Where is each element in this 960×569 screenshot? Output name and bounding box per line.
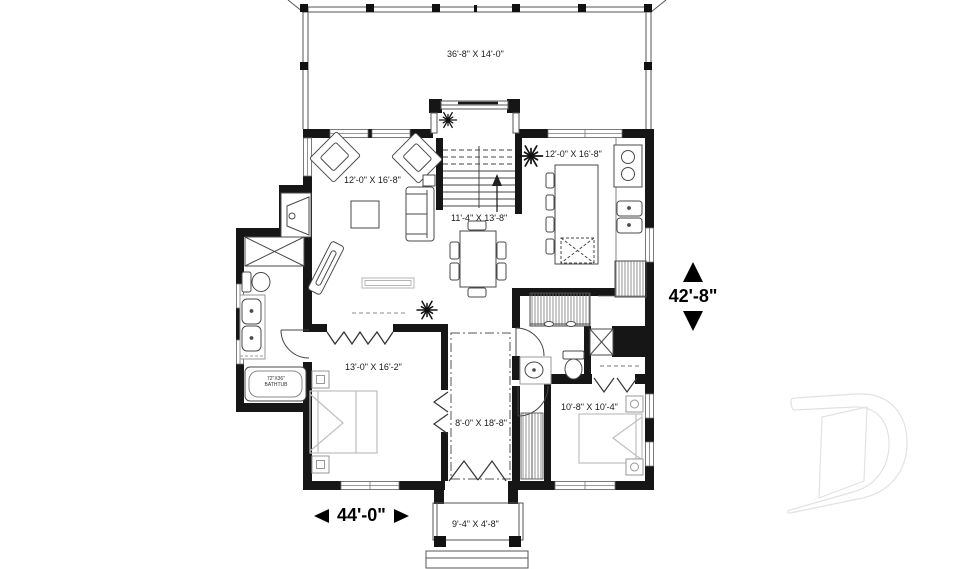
refrigerator <box>615 261 646 297</box>
porch-french-doors <box>449 461 506 481</box>
arrow-right-icon <box>394 509 409 523</box>
master-double-doors <box>434 392 448 434</box>
nightstand <box>312 456 329 473</box>
island-sink-dashed <box>561 238 594 263</box>
overall-height-dimension: 42'-8" <box>660 262 726 331</box>
arrow-up-icon <box>683 262 703 282</box>
toilet <box>563 351 584 379</box>
sofa <box>406 187 434 241</box>
master-bedroom-furniture <box>310 313 406 473</box>
stool <box>546 239 554 254</box>
bedroom2-door <box>518 386 548 416</box>
nightstand <box>626 396 643 412</box>
bathroom1-door <box>281 330 309 358</box>
porch-size-label: 9'-4" X 4'-8" <box>452 519 499 529</box>
deck-size-label: 36'-8" X 14'-0" <box>447 49 504 59</box>
double-vanity <box>240 295 265 359</box>
hall-ceiling-line <box>451 333 510 479</box>
shower <box>530 293 590 327</box>
ceiling-light-icon <box>440 113 457 128</box>
bathroom2-door <box>516 328 544 356</box>
kitchen-sink <box>617 201 642 233</box>
toilet <box>242 272 270 292</box>
dining-furniture <box>450 221 506 297</box>
dining-chair <box>450 242 459 259</box>
linen-closet <box>590 329 613 355</box>
living-room-size-label: 12'-0" X 16'-8" <box>344 175 401 185</box>
dining-chair <box>497 242 506 259</box>
bathroom2-fixtures <box>520 293 613 384</box>
bed <box>310 391 377 453</box>
closet <box>521 413 543 479</box>
staircase <box>443 146 515 208</box>
side-table <box>423 175 435 186</box>
porch-post <box>434 536 446 547</box>
linen-closet <box>245 237 304 266</box>
dining-size-label: 11'-4" X 13'-8" <box>451 213 507 223</box>
kitchen-size-label: 12'-0" X 16'-8" <box>545 149 602 159</box>
dining-chair <box>450 263 459 280</box>
stool <box>546 173 554 188</box>
bathtub-label-line2: BATHTUB <box>252 382 300 388</box>
floor-plan-page: 36'-8" X 14'-0" 12'-0" X 16'-8" 12'-0" X… <box>0 0 960 569</box>
hall-size-label: 8'-0" X 18'-8" <box>450 418 512 428</box>
bedroom2-closet-doors <box>594 378 637 392</box>
coffee-table <box>351 201 379 228</box>
watermark-d-logo <box>788 394 907 513</box>
dining-chair <box>497 263 506 280</box>
stool <box>546 195 554 210</box>
nightstand <box>626 459 643 475</box>
porch <box>426 503 528 568</box>
tv-unit <box>308 241 345 295</box>
vanity <box>520 357 551 384</box>
stool <box>546 217 554 232</box>
floor-plan-drawing <box>0 0 960 569</box>
bathtub-label: 72"X36" BATHTUB <box>252 376 300 388</box>
bedroom2-size-label: 10'-8" X 10'-4" <box>561 402 618 412</box>
arrow-down-icon <box>683 311 703 331</box>
overall-width-value: 44'-0" <box>337 505 386 526</box>
entry-vestibule <box>431 101 519 133</box>
porch-steps <box>426 551 528 568</box>
bed <box>579 414 642 463</box>
nightstand <box>312 371 329 388</box>
dining-chair <box>468 288 486 297</box>
cooktop <box>614 145 642 187</box>
deck-railing <box>288 0 666 129</box>
overall-width-dimension: 44'-0" <box>314 505 409 526</box>
dining-table <box>460 231 496 287</box>
overall-height-value: 42'-8" <box>669 286 718 307</box>
master-bedroom-size-label: 13'-0" X 16'-2" <box>345 362 402 372</box>
bench <box>362 278 414 288</box>
arrow-left-icon <box>314 509 329 523</box>
fireplace <box>281 193 311 237</box>
ceiling-light-icon <box>520 146 543 166</box>
deck-posts <box>300 4 652 70</box>
porch-post <box>509 536 521 547</box>
ceiling-light-icon <box>417 301 437 318</box>
closet-bifold-doors <box>327 332 393 344</box>
